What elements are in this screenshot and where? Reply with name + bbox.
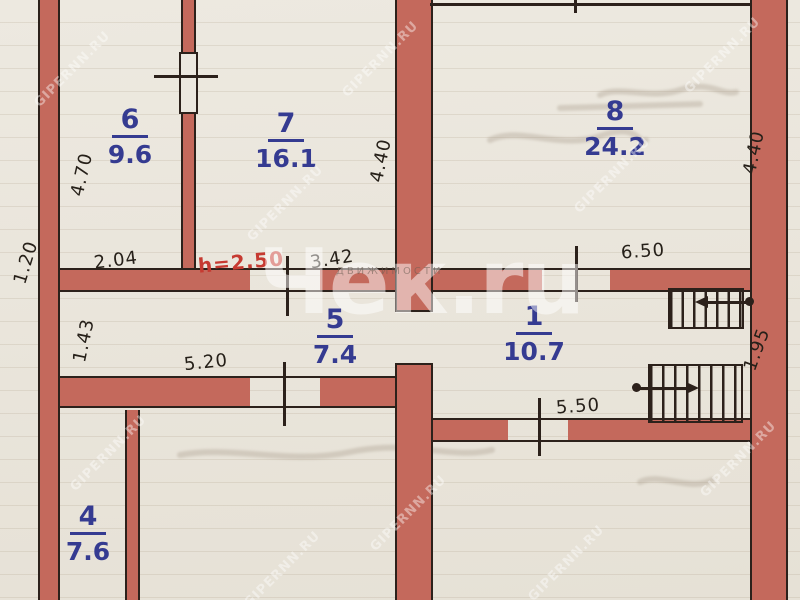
corridor-bottom-wall-left (60, 376, 250, 408)
floor-plan: 6 9.6 7 16.1 8 24.2 5 7.4 1 10.7 4 7.6 1… (0, 0, 800, 600)
corridor-bottom-wall-right (320, 376, 395, 408)
room-7-number: 7 (268, 110, 305, 142)
tick-mark-room1-bottom (538, 398, 541, 456)
dimension-room1-width: 5.50 (551, 394, 604, 419)
room-label-6: 6 9.6 (100, 106, 160, 169)
window-symbol-wall-6-7 (179, 52, 198, 114)
stair-arrow-upper-dot (745, 297, 754, 306)
room-1-area: 10.7 (502, 335, 566, 366)
wall-outer-right (750, 0, 788, 600)
room1-bottom-wall-left (433, 418, 508, 442)
tick-mark-corridor-bottom (283, 362, 286, 426)
room8-top-wall-line (430, 3, 750, 6)
tick-mark-room8-top (574, 0, 577, 13)
stair-arrow-upper-line (706, 301, 750, 304)
room-8-number: 8 (597, 98, 634, 130)
stair-arrow-lower-line (638, 387, 690, 390)
room-7-area: 16.1 (254, 142, 318, 173)
staircase-upper-flight (668, 288, 744, 329)
wall-mid-vertical (395, 363, 433, 600)
room-4-number: 4 (70, 503, 107, 535)
watermark-strip: ДВИЖИМОСТИ (336, 266, 443, 277)
dimension-room8-width: 6.50 (614, 239, 671, 264)
window-crossbar-line (154, 75, 218, 78)
wall-rooms-6-7 (181, 0, 196, 272)
center-watermark: Чек.ru (258, 238, 584, 328)
room-5-area: 7.4 (305, 338, 365, 369)
room-label-7: 7 16.1 (254, 110, 318, 173)
stair-arrow-lower-head-icon (686, 382, 699, 394)
room-label-4: 4 7.6 (58, 503, 118, 566)
stair-arrow-upper-head-icon (695, 296, 708, 308)
room-6-number: 6 (112, 106, 149, 138)
room-6-area: 9.6 (100, 138, 160, 169)
room-4-area: 7.6 (58, 535, 118, 566)
stair-arrow-lower-dot (632, 383, 641, 392)
